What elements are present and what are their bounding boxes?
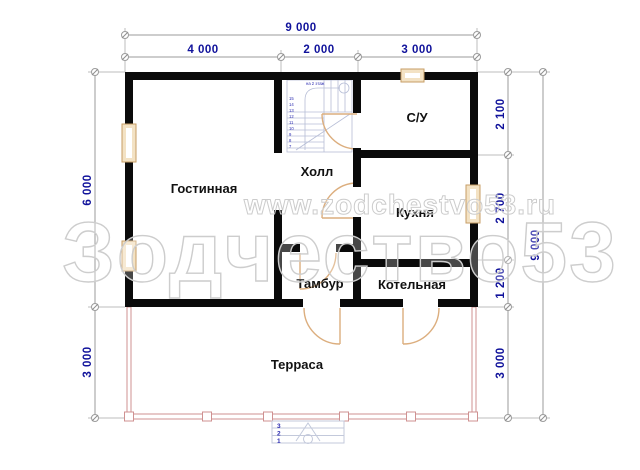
dim-top-total: 9 000 (285, 22, 316, 34)
dim-top-3000: 3 000 (401, 44, 432, 56)
stair-num: 13 (289, 108, 294, 113)
window-bathroom (401, 69, 424, 82)
staircase (287, 80, 352, 152)
dim-top-4000: 4 000 (187, 44, 218, 56)
watermark-brand: Зодчество53 (62, 205, 618, 299)
dim-left-3000: 3 000 (82, 346, 94, 377)
stair-num: 11 (289, 120, 294, 125)
up-arrow-icon (296, 423, 320, 441)
stair-num: 15 (289, 96, 294, 101)
stair-num: 10 (289, 126, 294, 131)
stair-num: 12 (289, 114, 294, 119)
entry-step-3: 3 (277, 423, 281, 430)
entry-step-numbers: 3 2 1 (277, 423, 281, 445)
door-boiler-terrace (403, 308, 439, 344)
stair-num: 14 (289, 102, 294, 107)
dim-right-2100: 2 100 (495, 98, 507, 129)
entry-steps (272, 421, 344, 444)
floor-plan-drawing: 9 000 4 000 2 000 3 000 6 000 3 000 2 10… (0, 0, 640, 470)
door-vestibule-terrace (304, 308, 340, 344)
dim-top-2000: 2 000 (303, 44, 334, 56)
staircase-step-numbers: 15 14 13 12 11 10 9 8 7 на 2 этаж (289, 81, 325, 149)
entry-step-2: 2 (277, 431, 281, 438)
room-label-terrace: Терраса (271, 357, 324, 372)
floor-plan-page: 9 000 4 000 2 000 3 000 6 000 3 000 2 10… (0, 0, 640, 470)
room-label-hall: Холл (301, 164, 334, 179)
entry-step-1: 1 (277, 438, 281, 445)
dim-left-6000: 6 000 (82, 174, 94, 205)
room-label-bathroom: С/У (406, 110, 428, 125)
window-living-upper (122, 124, 136, 162)
room-label-living: Гостинная (171, 181, 238, 196)
dim-right-3000: 3 000 (495, 347, 507, 378)
watermark-layer: www.zodchestvo53.ru Зодчество53 (62, 189, 618, 299)
stair-annotation: на 2 этаж (306, 81, 325, 86)
